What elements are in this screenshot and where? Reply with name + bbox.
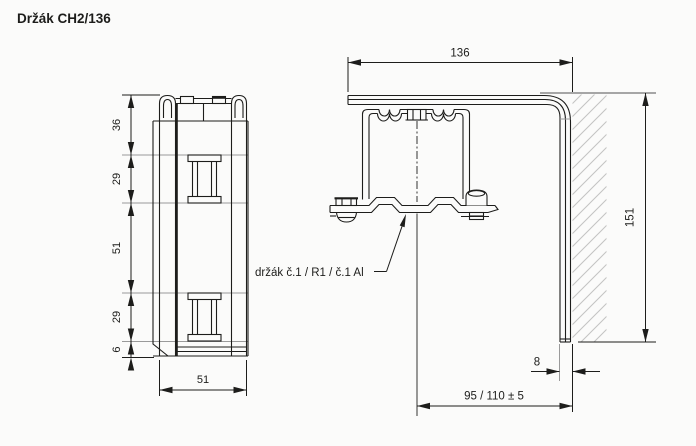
dim-width-label: 51 [197, 374, 209, 386]
clamp-assembly [330, 110, 498, 417]
dim-29b-label: 29 [111, 311, 123, 323]
mounting-slot-lower [188, 293, 221, 341]
side-view-width-dimension: 51 [160, 374, 247, 393]
wall-hatch [573, 95, 607, 343]
dim-29a-label: 29 [111, 173, 123, 185]
side-view: 36 29 51 29 6 51 [111, 95, 248, 396]
dim-8-label: 8 [534, 357, 540, 369]
drawing-canvas: Držák CH2/136 [0, 0, 696, 446]
front-view: držák č.1 / R1 / č.1 Al 136 151 [255, 48, 656, 417]
side-view-extension-lines [122, 155, 248, 342]
page-title: Držák CH2/136 [17, 11, 111, 26]
dim-6-label: 6 [111, 346, 123, 352]
dim-51-label: 51 [111, 242, 123, 254]
dim-36-label: 36 [111, 119, 123, 131]
dim-offset-label: 95 / 110 ± 5 [464, 391, 524, 403]
part-label: držák č.1 / R1 / č.1 Al [255, 267, 364, 279]
right-screw [461, 190, 489, 220]
technical-drawing: Držák CH2/136 [0, 0, 696, 446]
dim-151-label: 151 [625, 208, 637, 227]
leader-arrow [400, 214, 406, 227]
part-label-leader: držák č.1 / R1 / č.1 Al [255, 214, 406, 279]
side-view-chain-dimension: 36 29 51 29 6 [111, 95, 134, 371]
bracket-plate [348, 96, 571, 343]
center-nut [406, 110, 429, 121]
dim-136-label: 136 [450, 48, 469, 60]
front-width-dimension: 136 [348, 48, 573, 93]
leg-thickness-dimension: 8 [531, 344, 600, 412]
mounting-slot-upper [188, 155, 221, 203]
wall-section [540, 93, 656, 342]
dimension-arrows [547, 368, 586, 374]
side-view-part [153, 96, 248, 357]
left-bolt [335, 198, 359, 222]
mount-offset-dimension: 95 / 110 ± 5 [417, 391, 573, 410]
side-view-extension-lines-dark [122, 95, 247, 396]
